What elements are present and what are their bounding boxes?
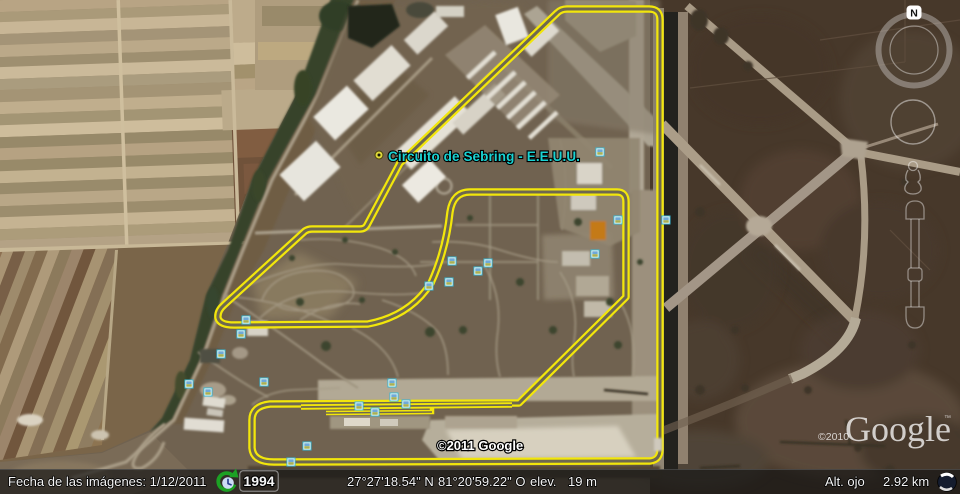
svg-text:Circuito de Sebring - E.E.U.U.: Circuito de Sebring - E.E.U.U. (388, 149, 580, 164)
svg-text:1994: 1994 (243, 473, 274, 489)
svg-text:2.92 km: 2.92 km (883, 474, 929, 489)
svg-text:©2011 Google: ©2011 Google (437, 438, 523, 453)
svg-text:Alt. ojo: Alt. ojo (825, 474, 865, 489)
svg-text:™: ™ (944, 415, 951, 422)
svg-text:19 m: 19 m (568, 474, 597, 489)
svg-text:Fecha de las imágenes: 1/12/20: Fecha de las imágenes: 1/12/2011 (8, 474, 207, 489)
svg-text:Google: Google (845, 409, 951, 449)
svg-text:27°27'18.54" N: 27°27'18.54" N (347, 474, 434, 489)
svg-text:N: N (910, 8, 918, 20)
svg-text:elev.: elev. (530, 474, 557, 489)
svg-text:81°20'59.22" O: 81°20'59.22" O (438, 474, 525, 489)
